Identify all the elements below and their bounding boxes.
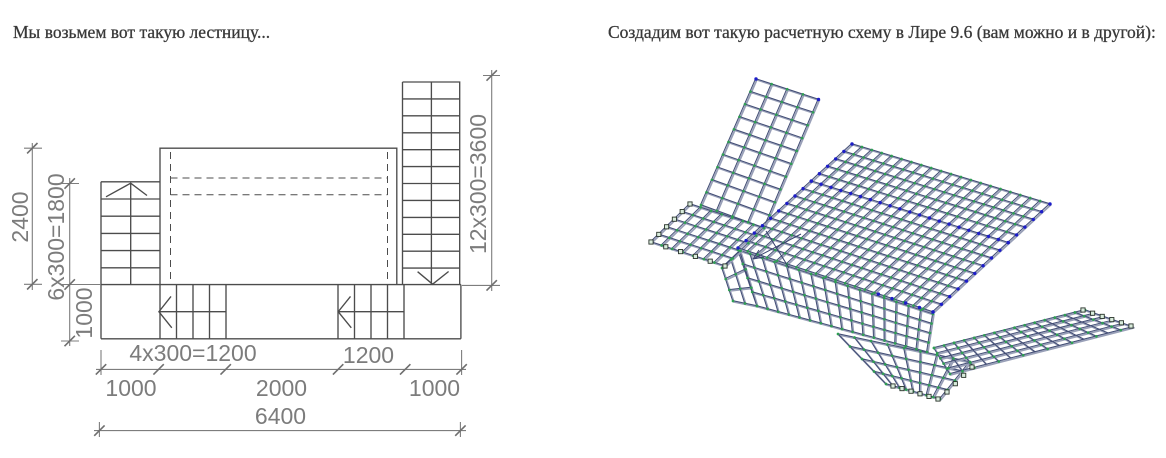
svg-text:1000: 1000 bbox=[71, 287, 97, 338]
svg-text:12x300=3600: 12x300=3600 bbox=[465, 114, 491, 254]
svg-text:4x300=1200: 4x300=1200 bbox=[129, 340, 256, 366]
svg-text:2000: 2000 bbox=[256, 375, 307, 401]
svg-text:6x300=1800: 6x300=1800 bbox=[43, 173, 69, 300]
svg-text:2400: 2400 bbox=[7, 191, 33, 242]
svg-text:1000: 1000 bbox=[105, 375, 156, 401]
svg-text:1000: 1000 bbox=[409, 375, 460, 401]
svg-text:6400: 6400 bbox=[255, 403, 306, 429]
svg-text:1200: 1200 bbox=[343, 342, 394, 368]
